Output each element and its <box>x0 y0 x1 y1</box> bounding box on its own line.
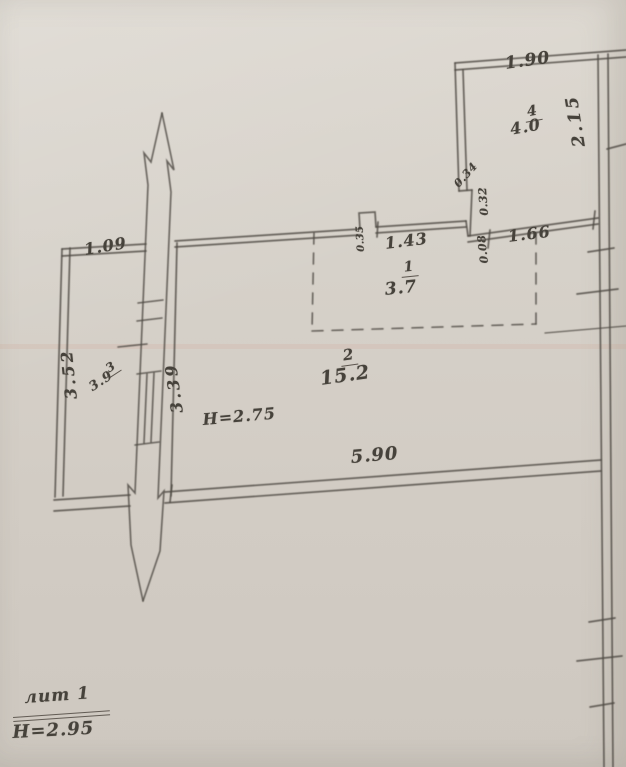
dim-590-label: 5.90 <box>350 445 399 467</box>
floorplan-scan: 1.90 4 4.0 2.15 0.34 0.32 0.35 0.08 1.43… <box>0 0 626 767</box>
building-height-note: H=2.95 <box>12 720 95 742</box>
room1-number: 1 <box>400 259 418 278</box>
break-band <box>118 113 174 601</box>
right-wall <box>577 54 626 767</box>
room1-area: 3.7 <box>384 279 418 299</box>
dim-035-label: 0.35 <box>356 225 367 252</box>
room1-extension-line <box>545 326 626 333</box>
dim-008-label: 0.08 <box>476 234 490 264</box>
liter-label: лит 1 <box>24 685 91 707</box>
dim-032-label: 0.32 <box>477 187 490 216</box>
bottom-wall <box>165 460 601 503</box>
